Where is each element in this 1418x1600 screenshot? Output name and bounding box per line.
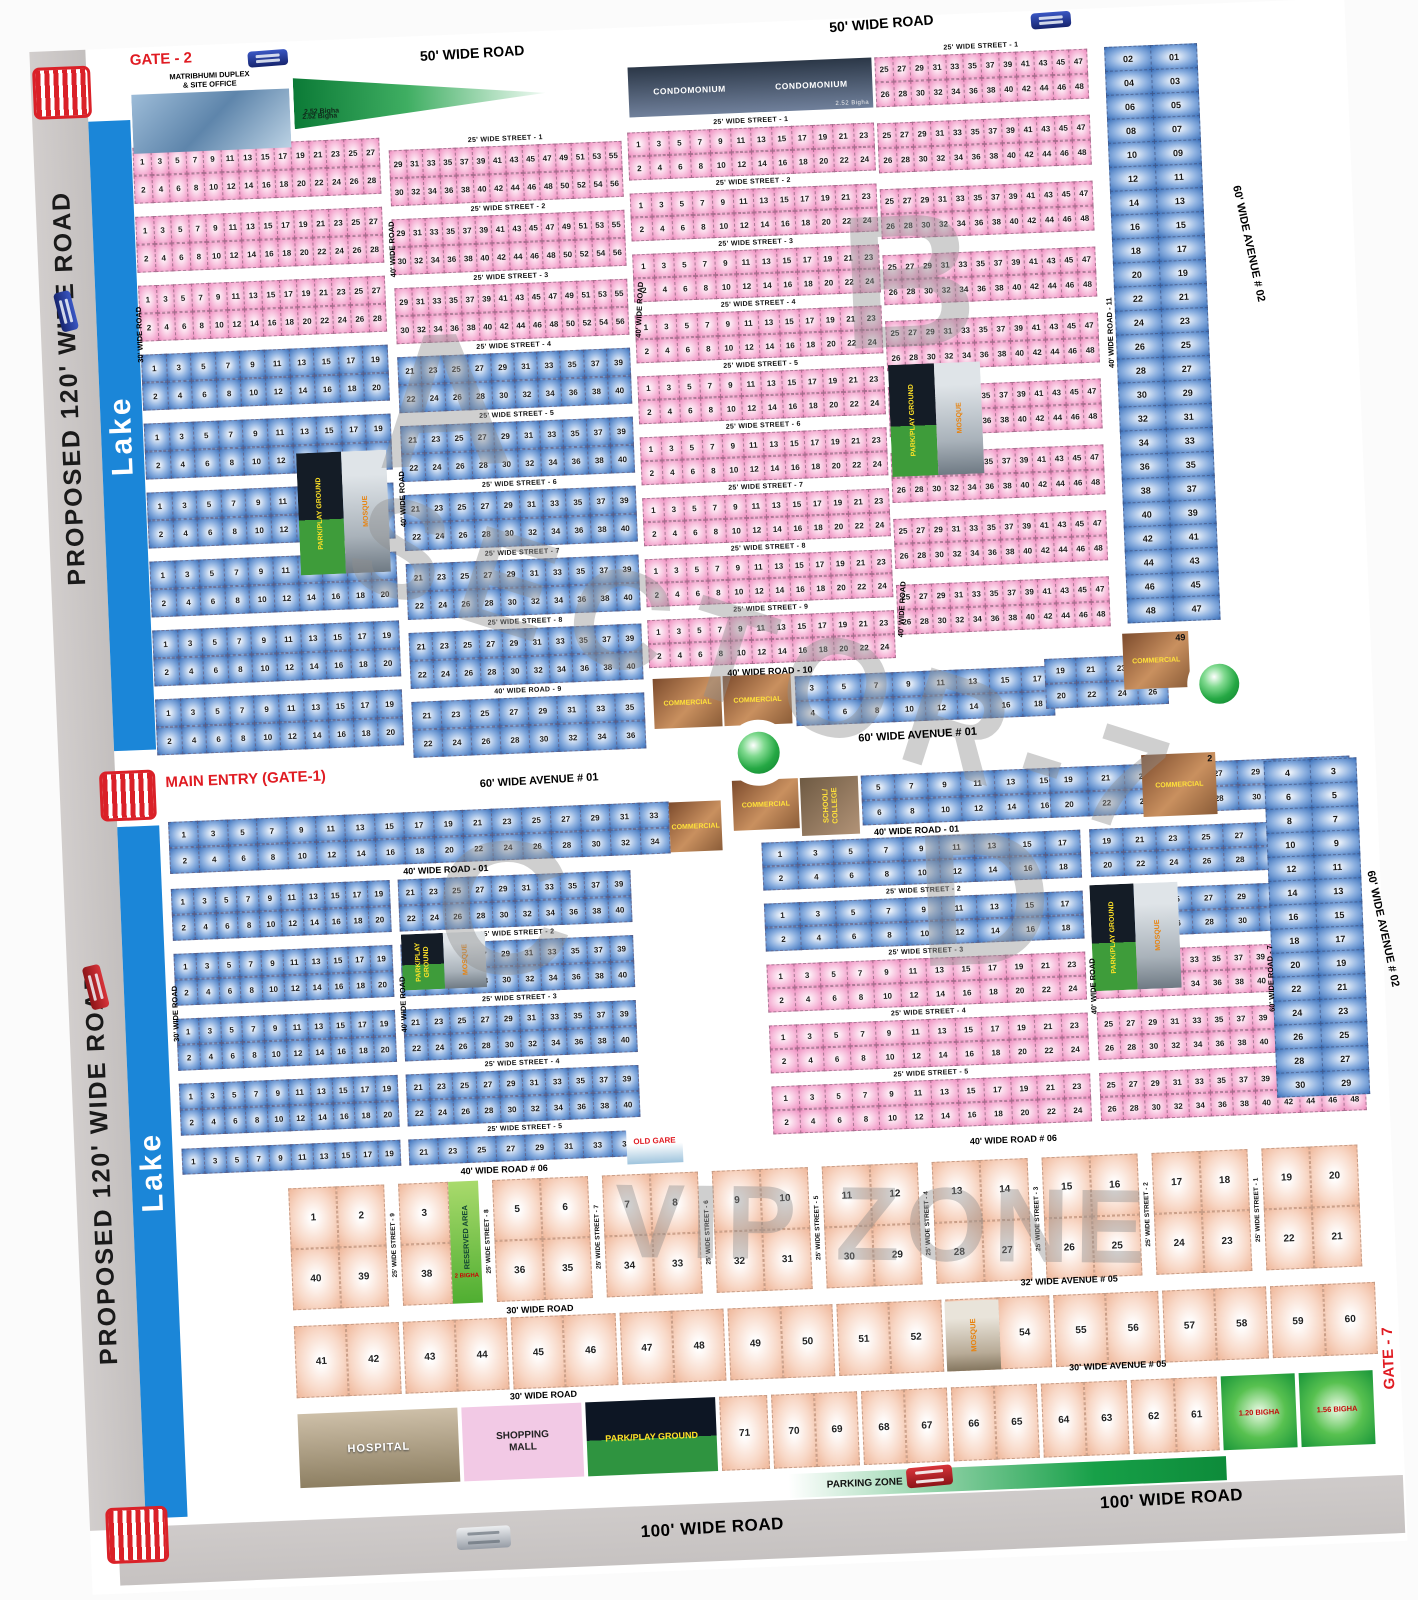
plot-14: 14 <box>766 516 788 541</box>
plot-41: 41 <box>1034 512 1054 538</box>
plot-46: 46 <box>1065 404 1085 430</box>
plot-38: 38 <box>584 377 609 406</box>
plot-7: 7 <box>229 695 256 724</box>
plot-4: 4 <box>199 1043 223 1070</box>
plot-33: 33 <box>582 1131 613 1158</box>
plot-36: 36 <box>1210 1092 1234 1117</box>
plot-6: 6 <box>679 398 701 423</box>
plot-8: 8 <box>243 1041 267 1068</box>
plot-38: 38 <box>1232 1091 1256 1116</box>
plot-14: 14 <box>761 394 783 419</box>
plot-3: 3 <box>168 422 195 451</box>
vip-plot-row: 4039 <box>291 1245 389 1310</box>
plot-9: 9 <box>258 884 282 911</box>
plot-4: 4 <box>796 1047 824 1072</box>
plot-13: 13 <box>755 249 777 274</box>
plot-31: 31 <box>1165 403 1213 430</box>
plot-48: 48 <box>1088 535 1108 561</box>
plot-20: 20 <box>1008 1039 1036 1064</box>
plot-20: 20 <box>373 1036 397 1063</box>
gate-marker <box>99 770 157 822</box>
plot-20: 20 <box>817 270 839 295</box>
plot-2: 2 <box>172 914 196 941</box>
plot-16: 16 <box>328 719 355 748</box>
plot-47: 47 <box>1071 115 1091 141</box>
plot-18: 18 <box>802 393 824 418</box>
plot-32: 32 <box>1164 1032 1188 1057</box>
plot-22: 22 <box>843 391 865 416</box>
plot-56: 56 <box>608 238 627 267</box>
plot-section-a-left: 1357911131517192123252724681012141618202… <box>133 138 404 756</box>
plot-14: 14 <box>759 334 781 359</box>
plot-19: 19 <box>824 429 846 454</box>
plot-14: 14 <box>931 1103 959 1128</box>
plot-34: 34 <box>537 379 562 408</box>
plot-6: 6 <box>833 862 870 887</box>
vip-plot-row: 38 <box>401 1243 453 1306</box>
plot-8: 8 <box>868 861 905 886</box>
plot-17: 17 <box>340 415 367 444</box>
plot-6: 6 <box>205 724 232 753</box>
plot-36: 36 <box>1121 453 1169 480</box>
plot-14: 14 <box>764 455 786 480</box>
plot-45: 45 <box>1172 571 1220 598</box>
plot-37: 37 <box>591 1066 616 1093</box>
plot-band: 2931333537394143454749515355303234363840… <box>390 141 624 206</box>
plot-24: 24 <box>427 1034 452 1061</box>
plot-39: 39 <box>1011 381 1031 407</box>
plot-29: 29 <box>498 1070 523 1097</box>
plot-32: 32 <box>931 145 951 171</box>
plot-68: 68 <box>861 1389 907 1465</box>
park-label: PARK/PLAY GROUND <box>315 477 326 550</box>
plot-22: 22 <box>410 660 435 689</box>
plot-37: 37 <box>588 1001 613 1028</box>
park-play-ground-tile: PARK/PLAY GROUND <box>585 1397 718 1476</box>
plot-45: 45 <box>1054 115 1074 141</box>
plot-5: 5 <box>196 490 223 519</box>
plot-32: 32 <box>945 475 965 501</box>
plot-4: 4 <box>659 399 681 424</box>
plot-11: 11 <box>267 418 294 447</box>
plot-17: 17 <box>791 125 813 150</box>
plot-48: 48 <box>1070 74 1090 100</box>
plot-24: 24 <box>433 659 458 688</box>
plot-6: 6 <box>540 1176 590 1239</box>
plot-pair: 3029 <box>1277 1070 1370 1098</box>
plot-32: 32 <box>557 723 588 752</box>
plot-34: 34 <box>968 606 988 632</box>
plot-9: 9 <box>722 433 744 458</box>
plot-57: 57 <box>1162 1289 1217 1363</box>
plot-25: 25 <box>1188 824 1223 849</box>
plot-43: 43 <box>1036 116 1056 142</box>
plot-19: 19 <box>817 246 839 271</box>
plot-23: 23 <box>440 700 471 729</box>
plot-17: 17 <box>804 430 826 455</box>
plot-7: 7 <box>220 489 247 518</box>
plot-28: 28 <box>893 81 913 107</box>
plot-section-c-left: 1357911131517192468101214161820135791113… <box>172 880 402 1175</box>
plot-12: 12 <box>273 583 300 612</box>
plot-27: 27 <box>892 56 912 82</box>
plot-27: 27 <box>1191 885 1226 910</box>
plot-5: 5 <box>832 838 869 863</box>
vip-plot-group: 4748 <box>619 1309 726 1385</box>
plot-6: 6 <box>823 1046 851 1071</box>
vip-plot-group: 6867 <box>861 1388 950 1465</box>
plot-28: 28 <box>1120 1034 1144 1059</box>
plot-7: 7 <box>691 190 713 215</box>
plot-42: 42 <box>1124 525 1172 552</box>
plot-11: 11 <box>735 249 757 274</box>
plot-15: 15 <box>778 309 800 334</box>
vip-plot-row: 3635 <box>495 1237 593 1302</box>
plot-15: 15 <box>771 126 793 151</box>
plot-37: 37 <box>986 184 1006 210</box>
plot-39: 39 <box>1006 249 1026 275</box>
park-label: PARK/PLAY GROUND <box>908 384 919 457</box>
plot-45: 45 <box>511 1315 566 1389</box>
plot-17: 17 <box>337 346 364 375</box>
mosque-tile: MOSQUE <box>1133 882 1181 990</box>
plot-27: 27 <box>895 122 915 148</box>
plot-35: 35 <box>984 581 1004 607</box>
plot-29: 29 <box>929 517 949 543</box>
plot-36: 36 <box>569 1093 594 1120</box>
plot-59: 59 <box>1270 1284 1325 1358</box>
plot-10: 10 <box>1266 831 1314 858</box>
plot-31: 31 <box>1165 1069 1189 1094</box>
plot-5: 5 <box>492 1178 542 1241</box>
plot-2: 2 <box>156 726 183 755</box>
shopping-mall-tile: SHOPPINGMALL <box>461 1403 584 1482</box>
plot-8: 8 <box>849 1045 877 1070</box>
plot-4: 4 <box>651 216 673 241</box>
parking-zone-label: PARKING ZONE <box>827 1476 903 1490</box>
plot-35: 35 <box>542 1237 592 1300</box>
plot-14: 14 <box>301 651 328 680</box>
plot-2: 2 <box>636 339 658 364</box>
plot-39: 39 <box>1020 579 1040 605</box>
plot-42: 42 <box>1017 76 1037 102</box>
plot-33: 33 <box>1185 1008 1209 1033</box>
plot-13: 13 <box>765 492 787 517</box>
plot-15: 15 <box>954 1017 982 1042</box>
plot-42: 42 <box>1025 274 1045 300</box>
plot-3: 3 <box>177 628 204 657</box>
plot-11: 11 <box>904 1080 932 1105</box>
plot-46: 46 <box>563 1313 618 1387</box>
plot-40: 40 <box>607 376 632 405</box>
plot-4: 4 <box>799 1108 827 1133</box>
plot-31: 31 <box>516 420 541 449</box>
plot-12: 12 <box>743 456 765 481</box>
plot-10: 10 <box>720 396 742 421</box>
plot-32: 32 <box>950 607 970 633</box>
plot-14: 14 <box>308 1039 332 1066</box>
plot-1: 1 <box>152 629 179 658</box>
car-icon <box>247 49 288 68</box>
plot-18: 18 <box>797 271 819 296</box>
plot-37: 37 <box>588 487 613 516</box>
plot-37: 37 <box>1231 1067 1255 1092</box>
plot-43: 43 <box>1041 248 1061 274</box>
plot-29: 29 <box>912 121 932 147</box>
plot-7: 7 <box>215 351 242 380</box>
plot-44: 44 <box>1125 549 1173 576</box>
plot-31: 31 <box>1163 1008 1187 1033</box>
plot-9: 9 <box>724 494 746 519</box>
plot-28: 28 <box>1122 1095 1146 1120</box>
plot-19: 19 <box>819 307 841 332</box>
plot-34: 34 <box>546 1094 571 1121</box>
plot-10: 10 <box>878 1105 906 1130</box>
plot-37: 37 <box>586 936 611 963</box>
street-label-text: 25' WIDE STREET - 7 <box>593 1204 603 1269</box>
plot-4: 4 <box>1263 759 1311 786</box>
plot-13: 13 <box>304 948 328 975</box>
plot-46: 46 <box>1063 338 1083 364</box>
plot-47: 47 <box>1074 181 1094 207</box>
plot-1: 1 <box>288 1186 338 1249</box>
plot-19: 19 <box>1007 1015 1035 1040</box>
plot-24: 24 <box>868 512 890 537</box>
plot-12: 12 <box>289 1104 313 1131</box>
plot-38: 38 <box>589 1027 614 1054</box>
plot-36: 36 <box>561 378 586 407</box>
watermark-vip-zone: VIP ZONE <box>614 1169 1151 1280</box>
plot-17: 17 <box>1316 925 1364 952</box>
plot-6: 6 <box>674 276 696 301</box>
plot-32: 32 <box>514 379 539 408</box>
plot-23: 23 <box>1319 997 1367 1024</box>
plot-43: 43 <box>1049 446 1069 472</box>
plot-41: 41 <box>1018 117 1038 143</box>
plot-2: 2 <box>145 451 172 480</box>
site-office-tile: MATRIBHUMI DUPLEX& SITE OFFICE <box>130 65 291 153</box>
plot-8: 8 <box>230 723 257 752</box>
plot-band: 135791113151719212324681012141618202224 <box>628 122 876 180</box>
plot-37: 37 <box>583 871 608 898</box>
plot-4: 4 <box>194 913 218 940</box>
plot-16: 16 <box>777 272 799 297</box>
plot-11: 11 <box>747 554 769 579</box>
plot-6: 6 <box>684 520 706 545</box>
plot-20: 20 <box>820 331 842 356</box>
vip-plot-row: 5960 <box>1270 1282 1377 1358</box>
plot-11: 11 <box>1155 163 1203 190</box>
plot-38: 38 <box>1003 605 1023 631</box>
plot-band: 1357911131517192123252724681012141618202… <box>136 207 384 273</box>
plot-band: 135791113151719212324681012141618202224 <box>641 427 889 485</box>
plot-31: 31 <box>930 120 950 146</box>
plot-11: 11 <box>285 1013 309 1040</box>
plot-2: 2 <box>1207 753 1212 763</box>
plot-15: 15 <box>331 1077 355 1104</box>
mosque-label: MOSQUE <box>955 403 963 434</box>
plot-24: 24 <box>1059 976 1087 1001</box>
plot-1: 1 <box>640 436 662 461</box>
plot-9: 9 <box>709 128 731 153</box>
plot-10: 10 <box>243 447 270 476</box>
plot-8: 8 <box>227 654 254 683</box>
plot-5: 5 <box>676 313 698 338</box>
shopping-mall-label: MALL <box>509 1441 537 1455</box>
plot-46: 46 <box>1068 470 1088 496</box>
plot-13: 13 <box>763 431 785 456</box>
plot-15: 15 <box>326 947 350 974</box>
condominium-tile: CONDOMONIUMCONDOMONIUM2.52 Bigha <box>627 58 873 118</box>
plot-pair: 4847 <box>1128 596 1221 624</box>
plot-13: 13 <box>760 370 782 395</box>
street-label-text: 25' WIDE STREET - 9 <box>389 1213 399 1278</box>
plot-27: 27 <box>495 1135 526 1162</box>
plot-1: 1 <box>149 561 176 590</box>
plot-8: 8 <box>700 397 722 422</box>
plot-11: 11 <box>742 432 764 457</box>
plot-4: 4 <box>656 338 678 363</box>
vip-plot-row: 4950 <box>728 1304 835 1380</box>
road-label: 50' WIDE ROAD <box>420 42 525 64</box>
plot-45: 45 <box>1073 577 1093 603</box>
plot-21: 21 <box>1318 973 1366 1000</box>
plot-1: 1 <box>766 963 794 988</box>
plot-10: 10 <box>259 910 283 937</box>
plot-18: 18 <box>353 718 380 747</box>
plot-36: 36 <box>1208 1031 1232 1056</box>
plot-14: 14 <box>1268 879 1316 906</box>
plot-43: 43 <box>1044 314 1064 340</box>
plot-24: 24 <box>863 390 885 415</box>
plot-3: 3 <box>193 887 217 914</box>
plot-34: 34 <box>949 145 969 171</box>
plot-22: 22 <box>412 729 443 758</box>
plot-43: 43 <box>1033 50 1053 76</box>
plot-13: 13 <box>288 348 315 377</box>
plot-43: 43 <box>1052 512 1072 538</box>
plot-3: 3 <box>171 491 198 520</box>
plot-27: 27 <box>498 697 529 726</box>
plot-27: 27 <box>475 1071 500 1098</box>
plot-25: 25 <box>874 57 894 83</box>
plot-14: 14 <box>305 974 329 1001</box>
plot-band: 135791113151719212324681012141618202224 <box>643 488 891 546</box>
plot-9: 9 <box>242 419 269 448</box>
vip-plot-row: 2423 <box>1154 1210 1252 1275</box>
plot-7: 7 <box>851 1082 879 1107</box>
plot-16: 16 <box>784 455 806 480</box>
plot-34: 34 <box>1183 971 1207 996</box>
plot-22: 22 <box>1035 1038 1063 1063</box>
plot-10: 10 <box>254 722 281 751</box>
plot-40: 40 <box>1012 406 1032 432</box>
plot-6: 6 <box>221 1042 245 1069</box>
plot-34: 34 <box>639 827 670 854</box>
plot-27: 27 <box>914 583 934 609</box>
plot-11: 11 <box>901 1019 929 1044</box>
car-icon <box>82 964 110 1011</box>
plot-25: 25 <box>877 123 897 149</box>
plot-22: 22 <box>845 452 867 477</box>
plot-23: 23 <box>865 427 887 452</box>
plot-38: 38 <box>587 446 612 475</box>
plot-47: 47 <box>619 1311 674 1385</box>
plot-4: 4 <box>167 381 194 410</box>
plot-18: 18 <box>1112 237 1160 264</box>
plot-14: 14 <box>289 376 316 405</box>
plot-26: 26 <box>894 543 914 569</box>
plot-38: 38 <box>997 473 1017 499</box>
plot-24: 24 <box>1273 999 1321 1026</box>
park-label: PARK/PLAY GROUND <box>1108 901 1119 974</box>
hospital-tile: HOSPITAL <box>297 1408 460 1488</box>
truck-icon <box>906 1464 954 1488</box>
plot-10: 10 <box>873 983 901 1008</box>
plot-17: 17 <box>796 247 818 272</box>
plot-19: 19 <box>1010 1076 1038 1101</box>
vip-plot-group: 5960 <box>1270 1282 1377 1358</box>
plot-1: 1 <box>761 841 798 866</box>
plot-20: 20 <box>1113 261 1161 288</box>
plot-14: 14 <box>751 151 773 176</box>
plot-26: 26 <box>1274 1023 1322 1050</box>
plot-9: 9 <box>877 1081 905 1106</box>
vip-plot-row: 6261 <box>1131 1376 1220 1453</box>
car-icon <box>456 1525 511 1550</box>
plot-44: 44 <box>1034 75 1054 101</box>
plot-7: 7 <box>699 373 721 398</box>
plot-21: 21 <box>1312 1205 1362 1268</box>
plot-3: 3 <box>195 952 219 979</box>
plot-4: 4 <box>664 521 686 546</box>
plot-4: 4 <box>202 1108 226 1135</box>
plot-6: 6 <box>223 1107 247 1134</box>
plot-35: 35 <box>1207 1007 1231 1032</box>
plot-15: 15 <box>334 1142 358 1169</box>
plot-15: 15 <box>786 492 808 517</box>
plot-8: 8 <box>257 843 288 870</box>
plot-15: 15 <box>324 622 351 651</box>
vip-plot-row: 4546 <box>511 1313 618 1389</box>
plot-03: 03 <box>1151 67 1199 94</box>
plot-46: 46 <box>1052 74 1072 100</box>
plot-24: 24 <box>871 573 893 598</box>
plot-50: 50 <box>780 1304 835 1378</box>
plot-16: 16 <box>327 973 351 1000</box>
plot-2: 2 <box>142 382 169 411</box>
plot-7: 7 <box>701 434 723 459</box>
plot-30: 30 <box>932 608 952 634</box>
vip-plot-group: 6261 <box>1131 1376 1220 1453</box>
plot-21: 21 <box>1160 283 1208 310</box>
plot-15: 15 <box>781 370 803 395</box>
plot-8: 8 <box>240 976 264 1003</box>
plot-17: 17 <box>349 621 376 650</box>
plot-21: 21 <box>406 1074 431 1101</box>
plot-36: 36 <box>983 540 1003 566</box>
plot-20: 20 <box>368 906 392 933</box>
plot-47: 47 <box>1090 576 1110 602</box>
plot-6: 6 <box>820 985 848 1010</box>
plot-1: 1 <box>771 1085 799 1110</box>
plot-11: 11 <box>737 310 759 335</box>
plot-22: 22 <box>848 513 870 538</box>
plot-40: 40 <box>1252 1029 1276 1054</box>
plot-13: 13 <box>1314 877 1362 904</box>
plot-4: 4 <box>794 986 822 1011</box>
plot-34: 34 <box>1186 1032 1210 1057</box>
